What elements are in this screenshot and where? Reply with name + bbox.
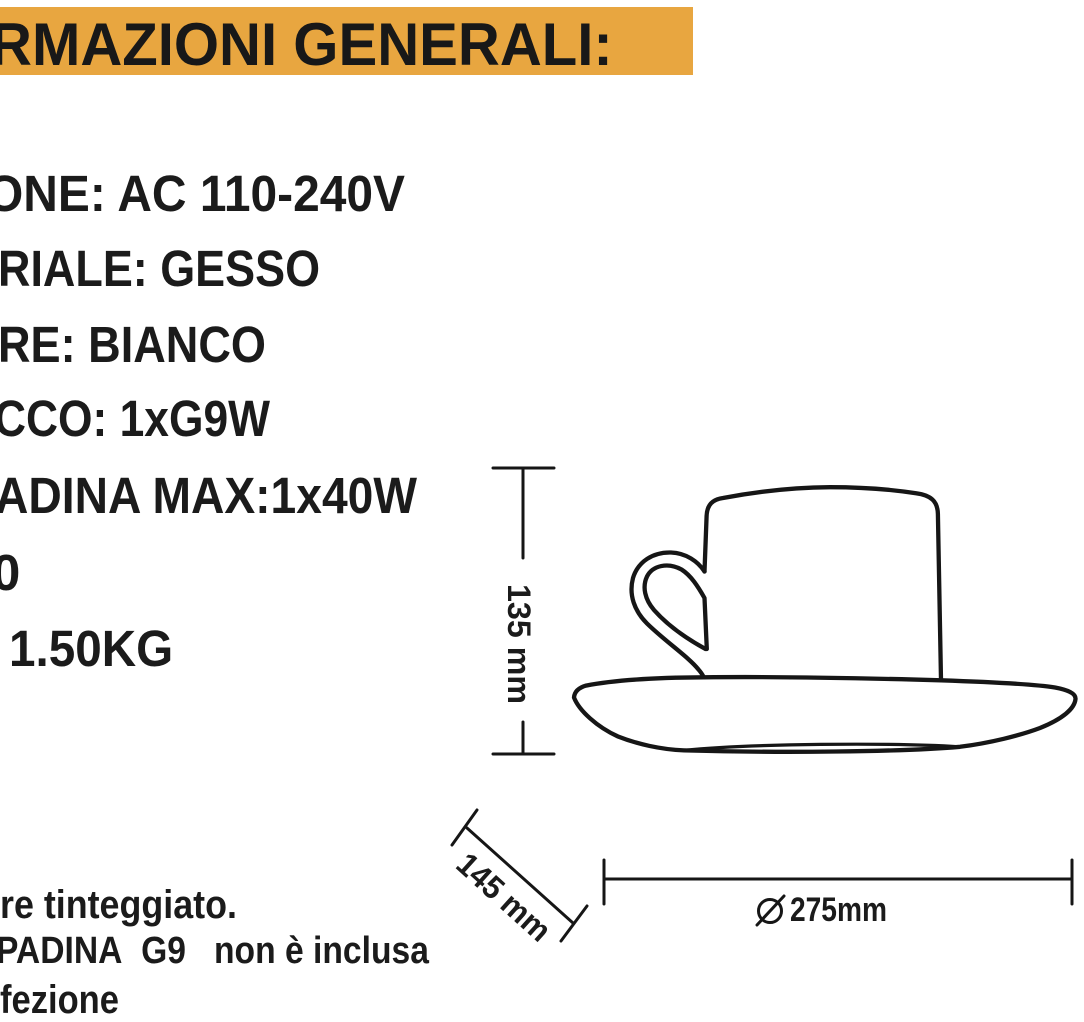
svg-text:275mm: 275mm (790, 891, 887, 929)
svg-text:135 mm: 135 mm (501, 584, 537, 704)
